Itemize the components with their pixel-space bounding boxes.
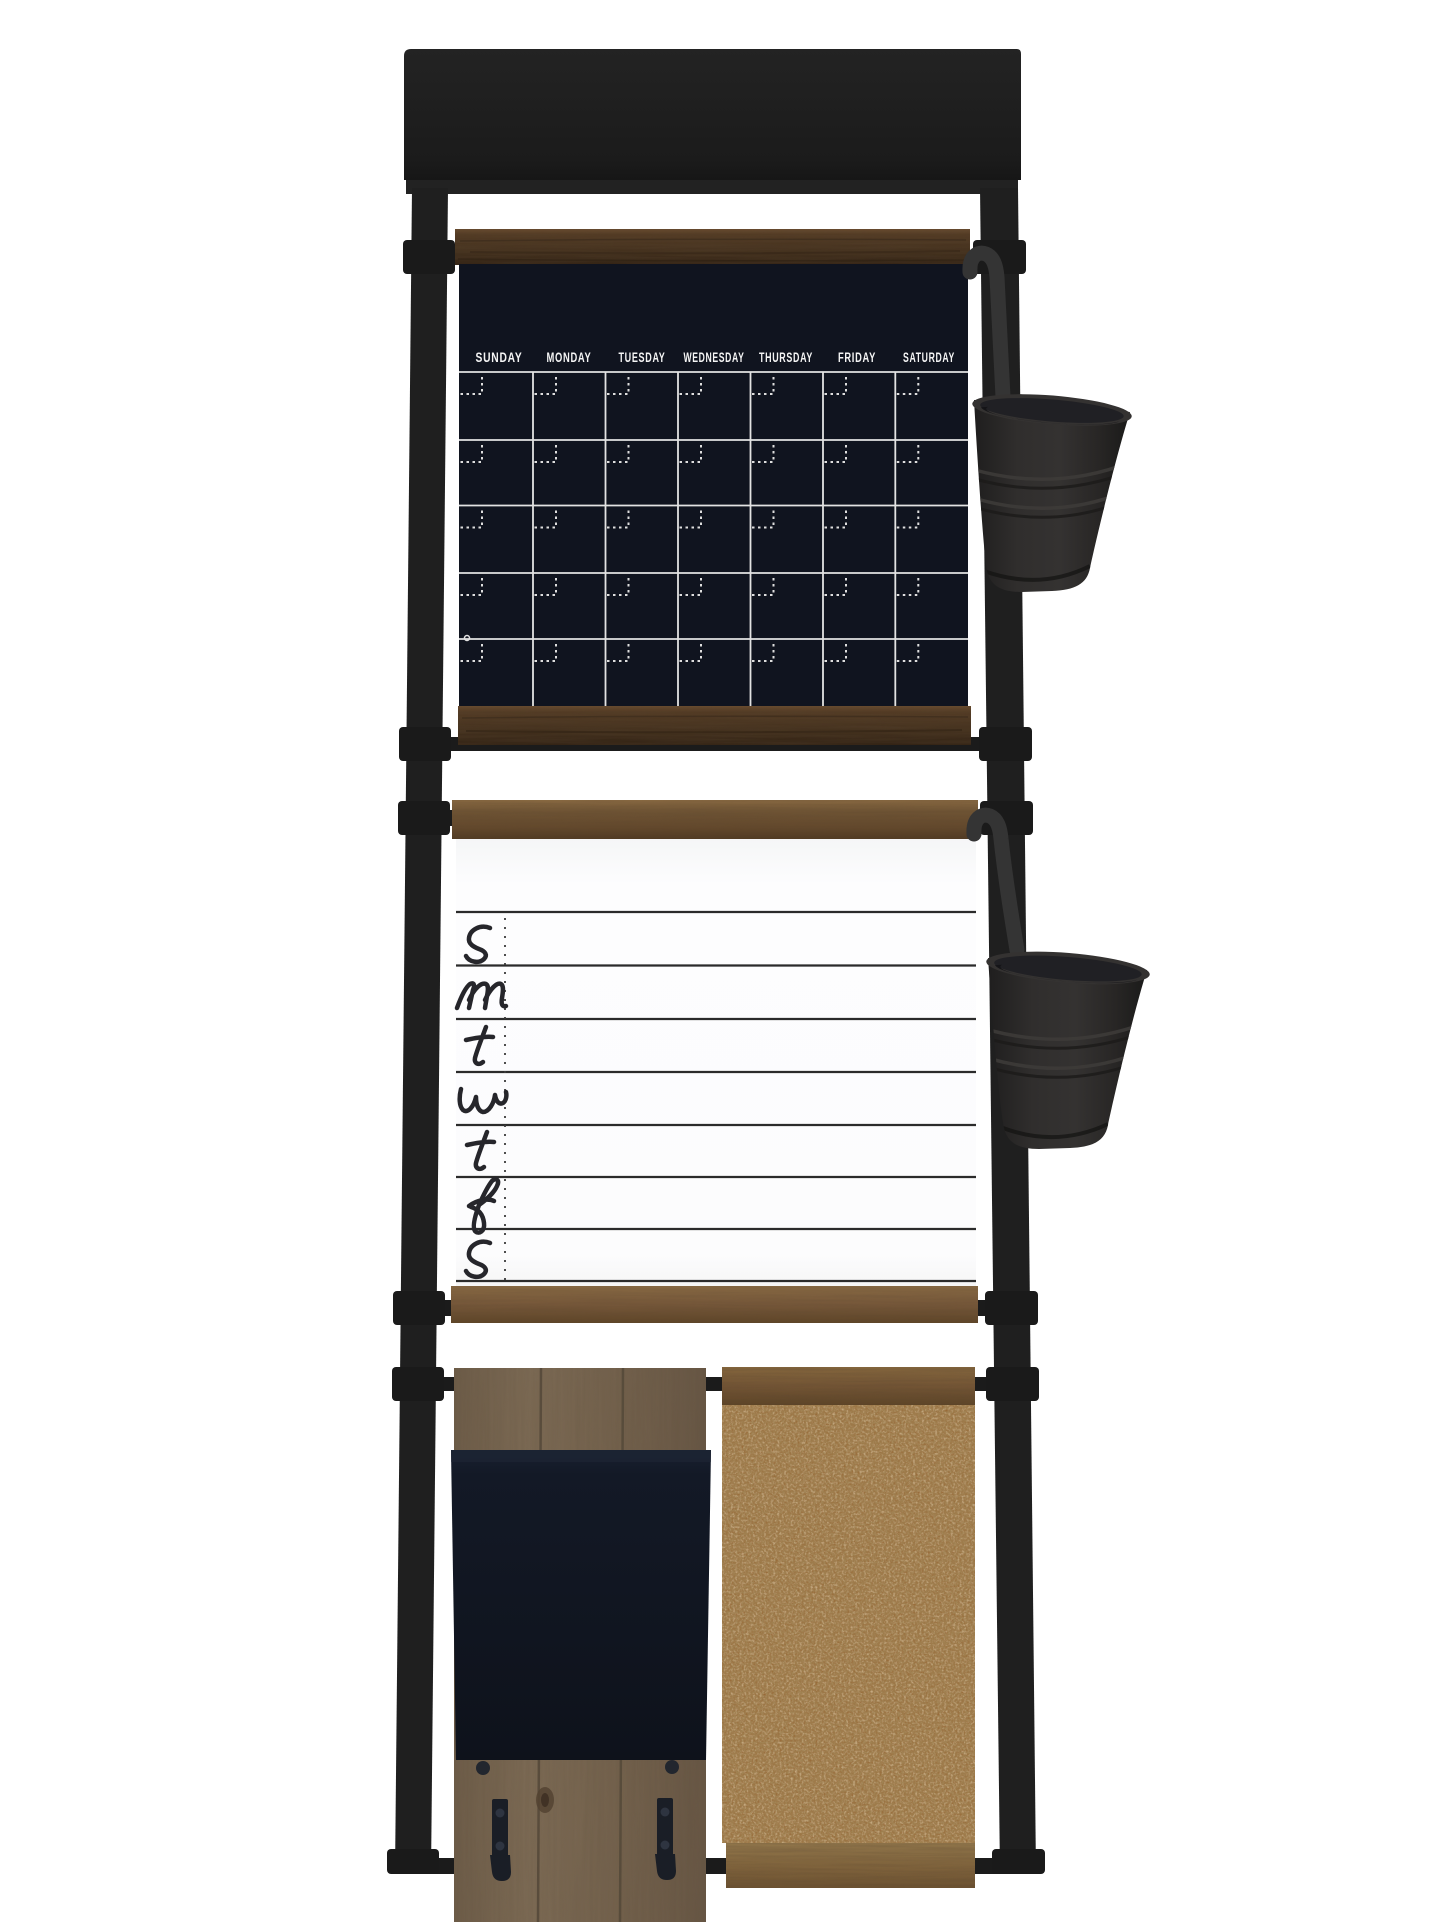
svg-text:MONDAY: MONDAY: [547, 350, 592, 365]
svg-text:WEDNESDAY: WEDNESDAY: [684, 350, 745, 365]
svg-text:THURSDAY: THURSDAY: [759, 350, 813, 365]
svg-text:TUESDAY: TUESDAY: [619, 350, 666, 365]
svg-text:SATURDAY: SATURDAY: [903, 350, 955, 365]
svg-text:SUNDAY: SUNDAY: [476, 350, 523, 365]
svg-text:FRIDAY: FRIDAY: [838, 350, 876, 365]
